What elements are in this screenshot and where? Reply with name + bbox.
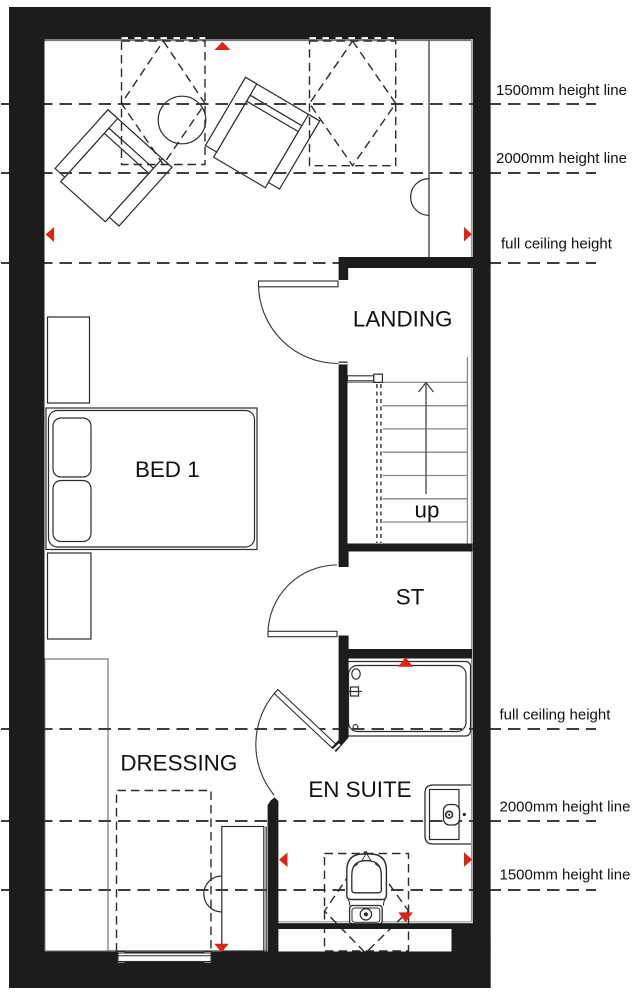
svg-text:EN SUITE: EN SUITE <box>308 777 411 802</box>
svg-text:LANDING: LANDING <box>353 307 453 332</box>
svg-text:1500mm height line: 1500mm height line <box>496 82 627 99</box>
svg-text:up: up <box>415 497 440 522</box>
svg-text:BED 1: BED 1 <box>135 457 200 482</box>
svg-text:full ceiling height: full ceiling height <box>501 235 613 252</box>
svg-text:DRESSING: DRESSING <box>120 751 237 776</box>
svg-text:1500mm height line: 1500mm height line <box>500 866 631 883</box>
svg-text:full ceiling height: full ceiling height <box>500 706 612 723</box>
svg-text:ST: ST <box>396 585 425 610</box>
svg-text:2000mm height line: 2000mm height line <box>500 798 631 815</box>
svg-text:2000mm height line: 2000mm height line <box>496 150 627 167</box>
